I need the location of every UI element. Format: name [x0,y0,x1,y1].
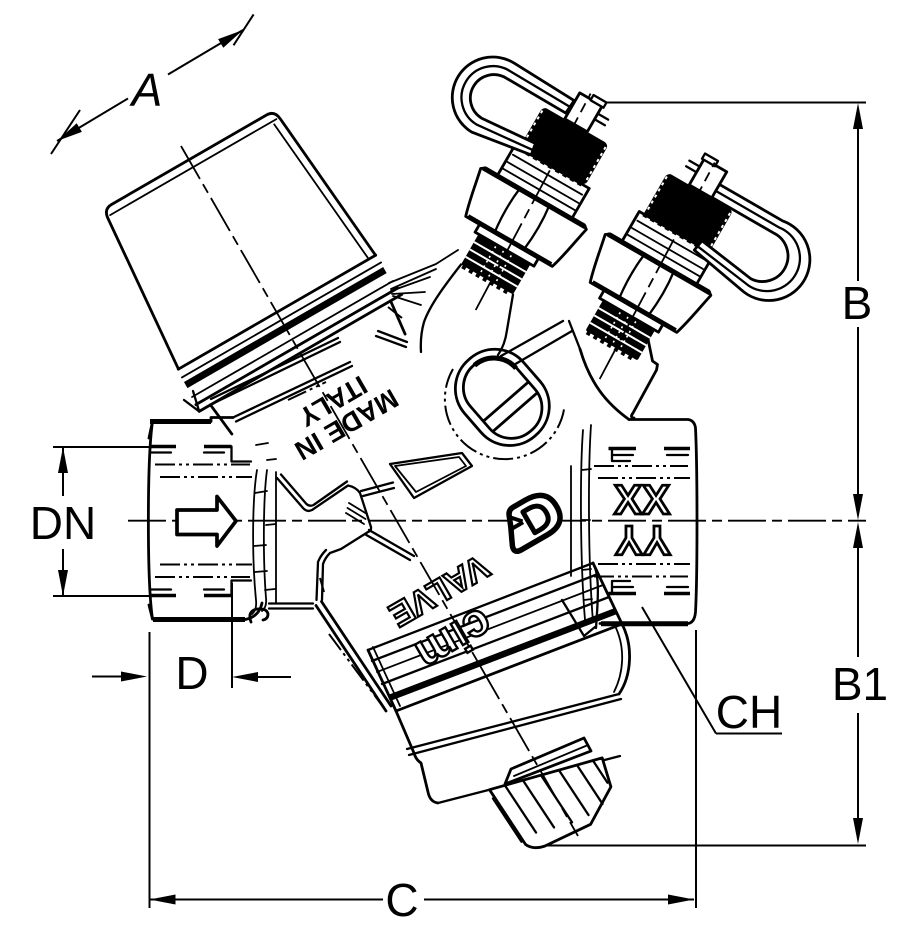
svg-text:B: B [842,277,873,329]
svg-text:C: C [385,874,418,926]
svg-text:D: D [175,647,208,699]
svg-text:B1: B1 [832,658,888,710]
svg-text:XX: XX [614,476,670,523]
svg-text:CH: CH [716,686,782,738]
svg-text:YY: YY [615,517,671,564]
svg-text:DN: DN [30,497,96,549]
svg-text:A: A [129,64,163,116]
